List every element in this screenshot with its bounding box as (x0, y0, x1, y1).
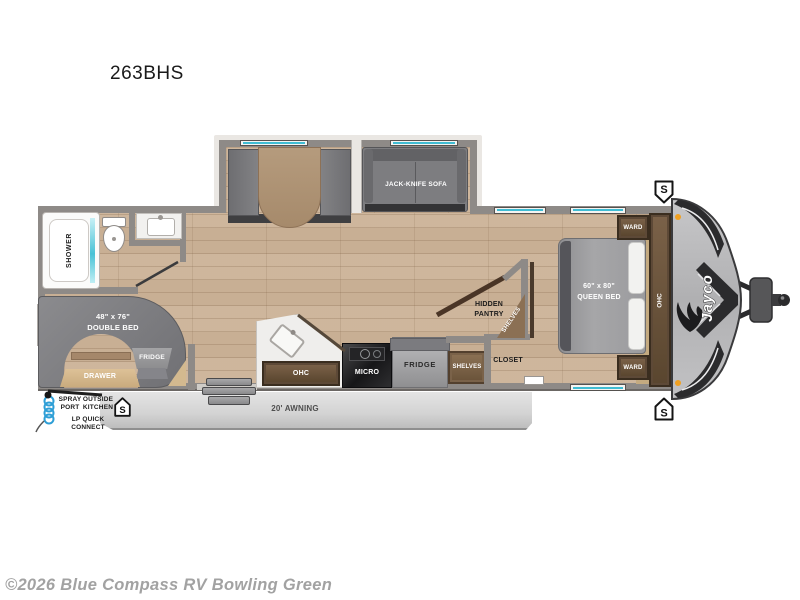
clearance-light-bottom (675, 380, 681, 386)
ward-top-label: WARD (619, 225, 647, 232)
window-bedroom-top (570, 207, 626, 214)
burner-icon-2 (373, 350, 381, 358)
spray-port-dot (45, 392, 52, 399)
window-bedroom-bottom (570, 384, 626, 391)
fridge-label: FRIDGE (393, 361, 447, 369)
queen-bed-name: QUEEN BED (559, 294, 639, 302)
clearance-light-top (675, 214, 681, 220)
pantry-shelf-edge (530, 262, 534, 338)
bed-fridge-base (136, 368, 168, 379)
lp-line1: LP QUICK (66, 416, 110, 423)
pillow-2 (628, 298, 645, 350)
coupler-ball (778, 294, 790, 306)
page-title: 263BHS (110, 63, 184, 85)
ward-top: WARD (617, 215, 649, 240)
wall-bath-2 (129, 240, 186, 246)
kitchen-ohc: OHC (262, 361, 340, 386)
bath-vanity (136, 213, 182, 239)
dinette-bench-left (228, 149, 259, 216)
speaker-badge-outside: S (114, 397, 131, 417)
fridge: FRIDGE (392, 337, 448, 388)
burner-icon (360, 349, 370, 359)
awning-label: 20' AWNING (250, 405, 340, 414)
drawer: DRAWER (60, 369, 140, 387)
double-bed-name: DOUBLE BED (39, 324, 187, 332)
hose-tail (36, 421, 44, 432)
shower-label: SHOWER (66, 232, 73, 267)
outside-line2: KITCHEN (82, 404, 114, 411)
ward-bottom-label: WARD (619, 365, 647, 372)
kitchen-shelves-label: SHELVES (448, 364, 486, 371)
hidden-pantry-line1: HIDDEN (455, 301, 523, 309)
dinette-bench-right (320, 149, 351, 216)
jackknife-sofa: JACK-KNIFE SOFA (362, 147, 468, 212)
chassis-line (48, 391, 102, 395)
faucet-icon (158, 215, 163, 220)
entry-step-3 (208, 396, 250, 405)
bed-fridge: FRIDGE (132, 348, 172, 369)
queen-bed-size: 60" x 80" (559, 283, 639, 291)
micro-stove: MICRO (342, 343, 392, 388)
window-dinette (240, 140, 308, 146)
wall-bed-right (188, 344, 195, 390)
dinette-table (258, 147, 321, 228)
floor-vent (524, 376, 544, 385)
closet-label: CLOSET (486, 357, 530, 365)
window-galley (494, 207, 546, 214)
speaker-s-outside: S (119, 405, 125, 416)
lp-line2: CONNECT (66, 424, 110, 431)
entry-step-2 (202, 387, 256, 395)
spray-line2: PORT (56, 404, 84, 411)
entry-step-1 (206, 378, 252, 386)
kitchen-shelves: SHELVES (448, 351, 486, 384)
speaker-s-bottom: S (660, 408, 667, 420)
window-sofa (390, 140, 458, 146)
shower-label-wrap: SHOWER (46, 214, 94, 286)
jayco-wordmark: Jayco (699, 274, 716, 322)
slide-divider (351, 140, 362, 213)
sofa-label: JACK-KNIFE SOFA (363, 181, 469, 188)
watermark: ©2026 Blue Compass RV Bowling Green (5, 576, 332, 595)
outside-line1: OUTSIDE (82, 396, 114, 403)
propane-cover (750, 278, 772, 322)
micro-label: MICRO (343, 369, 391, 377)
spray-line1: SPRAY (56, 396, 84, 403)
spray-hose-icon (45, 397, 54, 424)
bed-fridge-label: FRIDGE (132, 354, 172, 361)
drawer-label: DRAWER (60, 373, 140, 381)
front-cap: Jayco (648, 192, 800, 408)
ward-bottom: WARD (617, 355, 649, 380)
floorplan-page: 263BHS 20' AWNING SHOWER 48" (0, 0, 800, 600)
kitchen-ohc-label: OHC (264, 370, 338, 378)
double-bed-size: 48" x 76" (39, 313, 187, 321)
pillow (628, 242, 645, 294)
